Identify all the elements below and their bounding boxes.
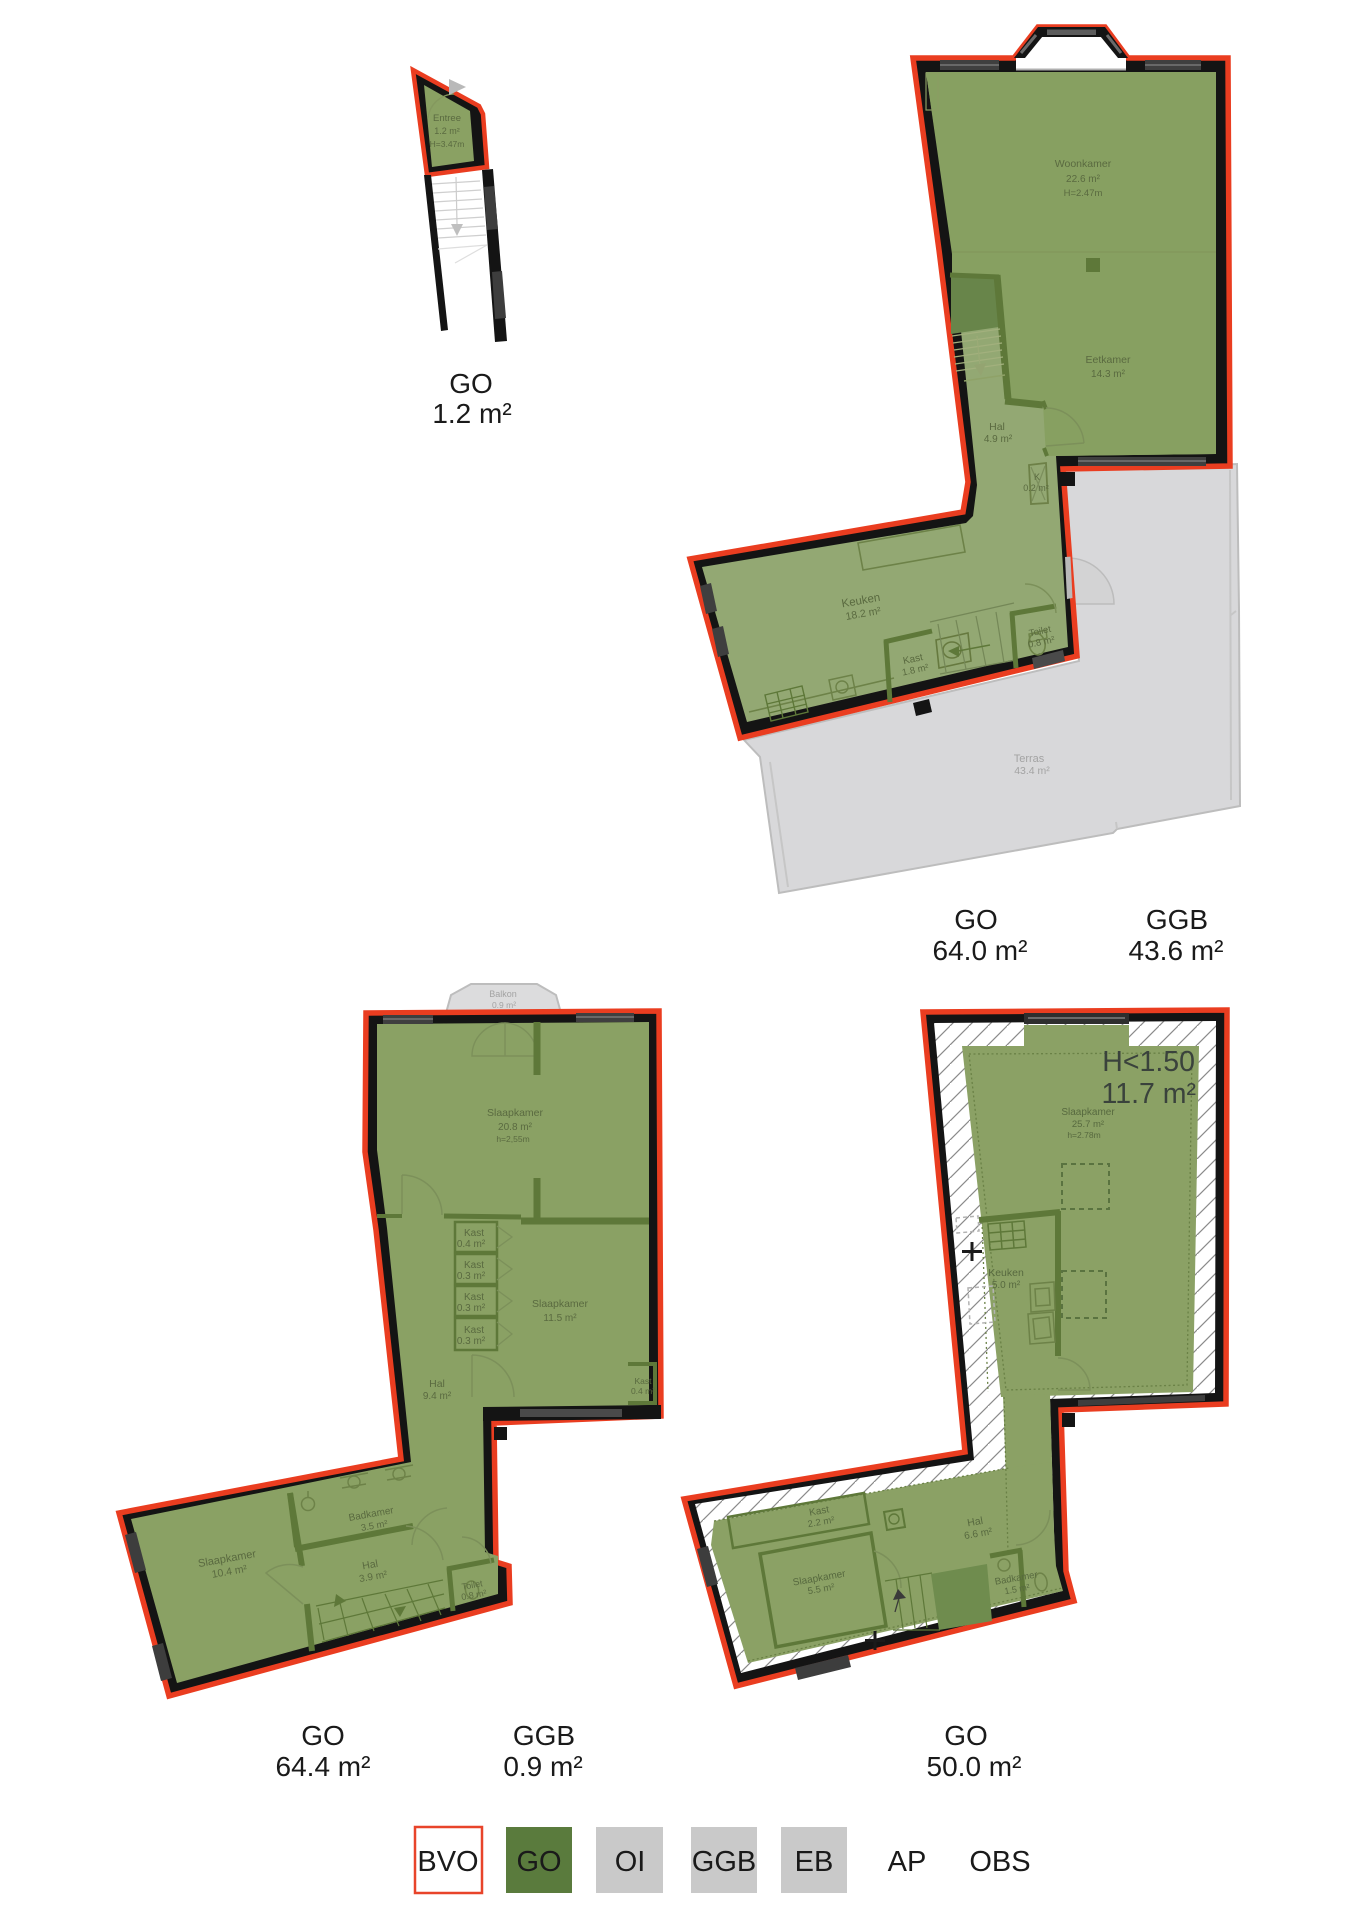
svg-text:5.0 m²: 5.0 m² <box>992 1280 1021 1291</box>
svg-text:1.2 m²: 1.2 m² <box>434 126 460 136</box>
svg-text:BVO: BVO <box>417 1846 478 1878</box>
svg-text:50.0 m²: 50.0 m² <box>927 1751 1022 1782</box>
svg-text:GGB: GGB <box>513 1720 575 1751</box>
svg-text:K: K <box>1034 472 1040 482</box>
svg-text:GGB: GGB <box>692 1846 756 1878</box>
svg-text:0.9 m²: 0.9 m² <box>503 1751 582 1782</box>
svg-text:Kast: Kast <box>464 1292 484 1303</box>
svg-text:11.7 m²: 11.7 m² <box>1101 1078 1196 1110</box>
svg-text:1.2 m²: 1.2 m² <box>432 398 511 429</box>
svg-text:GO: GO <box>516 1846 561 1878</box>
svg-text:0.4 m²: 0.4 m² <box>631 1386 655 1396</box>
svg-text:43.6 m²: 43.6 m² <box>1129 935 1224 966</box>
svg-text:GO: GO <box>301 1720 345 1751</box>
svg-text:0.4 m²: 0.4 m² <box>457 1239 486 1250</box>
svg-text:Slaapkamer: Slaapkamer <box>487 1107 544 1119</box>
svg-text:Kast: Kast <box>634 1376 652 1386</box>
svg-text:Keuken: Keuken <box>988 1267 1024 1279</box>
svg-text:Kast: Kast <box>464 1260 484 1271</box>
svg-text:Entree: Entree <box>433 113 461 124</box>
svg-text:9.4 m²: 9.4 m² <box>423 1391 452 1402</box>
svg-text:20.8 m²: 20.8 m² <box>498 1122 533 1133</box>
svg-text:64.0 m²: 64.0 m² <box>933 935 1028 966</box>
svg-text:Eetkamer: Eetkamer <box>1086 354 1131 366</box>
svg-text:0.3 m²: 0.3 m² <box>457 1336 486 1347</box>
svg-text:43.4 m²: 43.4 m² <box>1014 765 1050 777</box>
svg-text:GO: GO <box>954 904 998 935</box>
svg-text:Slaapkamer: Slaapkamer <box>532 1298 589 1310</box>
svg-text:OBS: OBS <box>969 1846 1030 1878</box>
svg-text:11.5 m²: 11.5 m² <box>543 1313 577 1324</box>
svg-text:OI: OI <box>615 1846 646 1878</box>
svg-text:h=2,55m: h=2,55m <box>496 1134 529 1144</box>
svg-text:Terras: Terras <box>1014 753 1045 765</box>
svg-text:AP: AP <box>888 1846 927 1878</box>
svg-text:0.2 m²: 0.2 m² <box>1023 483 1049 493</box>
svg-text:Hal: Hal <box>989 421 1005 433</box>
svg-text:0.9 m²: 0.9 m² <box>492 1000 516 1010</box>
svg-text:0.3 m²: 0.3 m² <box>457 1303 486 1314</box>
svg-text:22.6 m²: 22.6 m² <box>1066 174 1101 185</box>
svg-text:Kast: Kast <box>464 1228 484 1239</box>
svg-text:0.3 m²: 0.3 m² <box>457 1271 486 1282</box>
svg-text:GO: GO <box>944 1720 988 1751</box>
svg-text:H<1.50: H<1.50 <box>1102 1046 1195 1078</box>
svg-text:Slaapkamer: Slaapkamer <box>1061 1107 1115 1118</box>
svg-text:Woonkamer: Woonkamer <box>1055 158 1112 170</box>
svg-text:H=2.47m: H=2.47m <box>1064 188 1103 199</box>
svg-text:Hal: Hal <box>429 1378 445 1390</box>
svg-text:14.3 m²: 14.3 m² <box>1091 369 1126 380</box>
svg-text:h=2.78m: h=2.78m <box>1067 1130 1100 1140</box>
svg-text:Balkon: Balkon <box>489 989 517 999</box>
svg-text:4.9 m²: 4.9 m² <box>984 434 1013 445</box>
svg-text:EB: EB <box>795 1846 834 1878</box>
svg-text:H=3.47m: H=3.47m <box>430 139 465 149</box>
svg-text:GGB: GGB <box>1146 904 1208 935</box>
svg-text:64.4 m²: 64.4 m² <box>276 1751 371 1782</box>
svg-text:25.7 m²: 25.7 m² <box>1072 1119 1104 1130</box>
svg-text:GO: GO <box>449 368 493 399</box>
svg-text:Kast: Kast <box>464 1325 484 1336</box>
